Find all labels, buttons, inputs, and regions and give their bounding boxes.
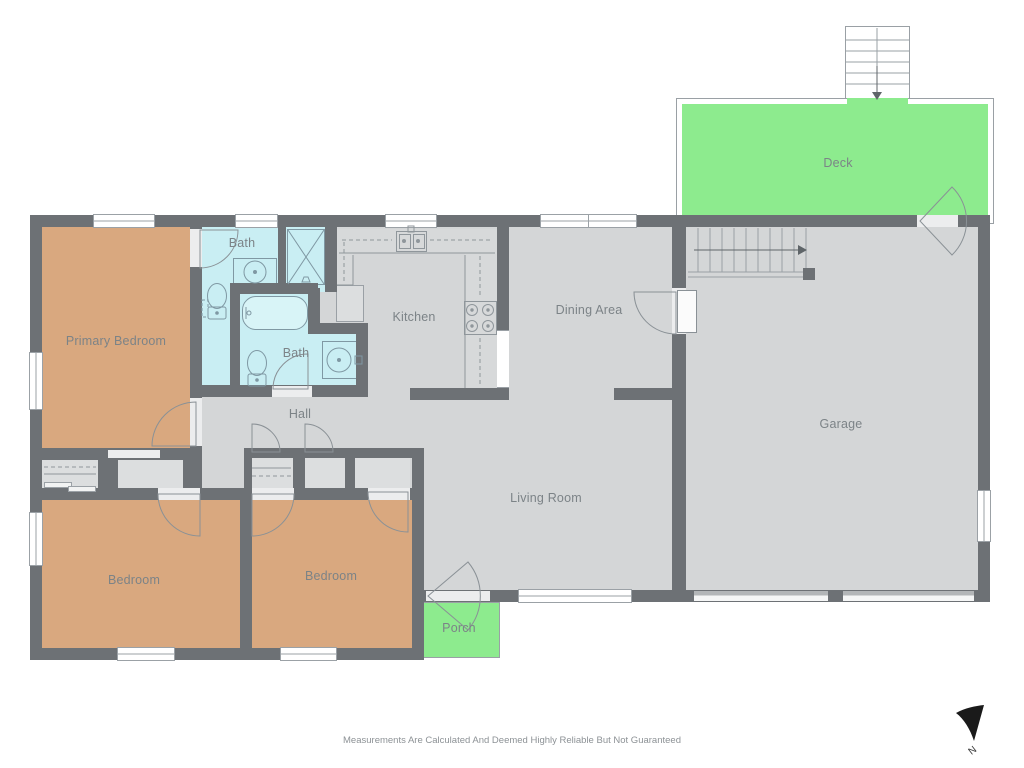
door-opening [252,488,294,500]
kitchen-counter [337,253,353,285]
closet-slider-door [68,486,96,492]
wall-segment [672,227,686,590]
room-label-bath-hall: Bath [283,346,310,360]
wall-segment [30,215,42,660]
wall-segment [183,448,202,488]
floorplan-canvas: Primary Bedroom Bath Bath Kitchen Dining… [0,0,1024,768]
shower [287,229,325,285]
wall-segment [230,283,318,294]
garage-door [694,591,828,601]
door-opening [368,488,410,500]
room-label-hall: Hall [289,407,311,421]
room-label-primary-bedroom: Primary Bedroom [66,334,166,348]
closet-floor [252,458,293,488]
door-opening [272,386,312,397]
door-opening [426,591,490,601]
door-opening [108,450,160,458]
room-label-deck: Deck [823,156,852,170]
room-label-bath-ensuite: Bath [229,236,256,250]
window [29,512,43,566]
window [385,214,437,228]
bath-vanity [233,258,277,286]
bath-vanity [322,341,357,379]
cased-opening [497,330,509,388]
window [93,214,155,228]
deck-stair-chute [845,26,910,98]
wall-segment [614,388,672,400]
window [518,589,632,603]
room-label-living-room: Living Room [510,491,582,505]
wall-segment [497,227,509,330]
wall-segment [30,215,990,227]
closet-floor [305,458,345,488]
door-opening [190,398,202,446]
room-label-bedroom-left: Bedroom [108,573,160,587]
window [540,214,589,228]
window [29,352,43,410]
floor-region [680,221,984,596]
wall-segment [278,227,286,289]
room-label-porch: Porch [442,621,476,635]
sink-basin [399,234,411,249]
wall-segment [325,227,337,292]
room-label-bedroom-middle: Bedroom [305,569,357,583]
wall-segment [345,448,355,500]
bath-floor [202,285,230,385]
window [280,647,337,661]
room-label-dining-area: Dining Area [556,303,623,317]
bathtub [242,296,308,330]
wall-segment [240,500,252,648]
wall-segment [497,388,509,400]
door-panel [677,290,697,333]
wall-segment [410,388,509,400]
closet-floor [118,458,183,488]
wall-segment [30,648,424,660]
window [977,490,991,542]
wall-segment [244,448,252,488]
closet-floor [355,458,410,488]
sink-basin [413,234,425,249]
window [235,214,278,228]
window [588,214,637,228]
wall-segment [293,448,305,500]
door-opening [917,215,958,227]
wall-segment [230,283,240,397]
north-label: N [967,744,979,757]
room-label-garage: Garage [820,417,863,431]
compass: N [956,705,984,758]
disclaimer-text: Measurements Are Calculated And Deemed H… [0,735,1024,746]
door-opening [190,229,202,267]
stove [464,301,497,335]
window [117,647,175,661]
door-opening [158,488,200,500]
wall-segment [246,448,412,458]
wall-segment [412,448,424,660]
garage-door [843,591,974,601]
room-label-kitchen: Kitchen [392,310,435,324]
refrigerator [336,285,364,322]
